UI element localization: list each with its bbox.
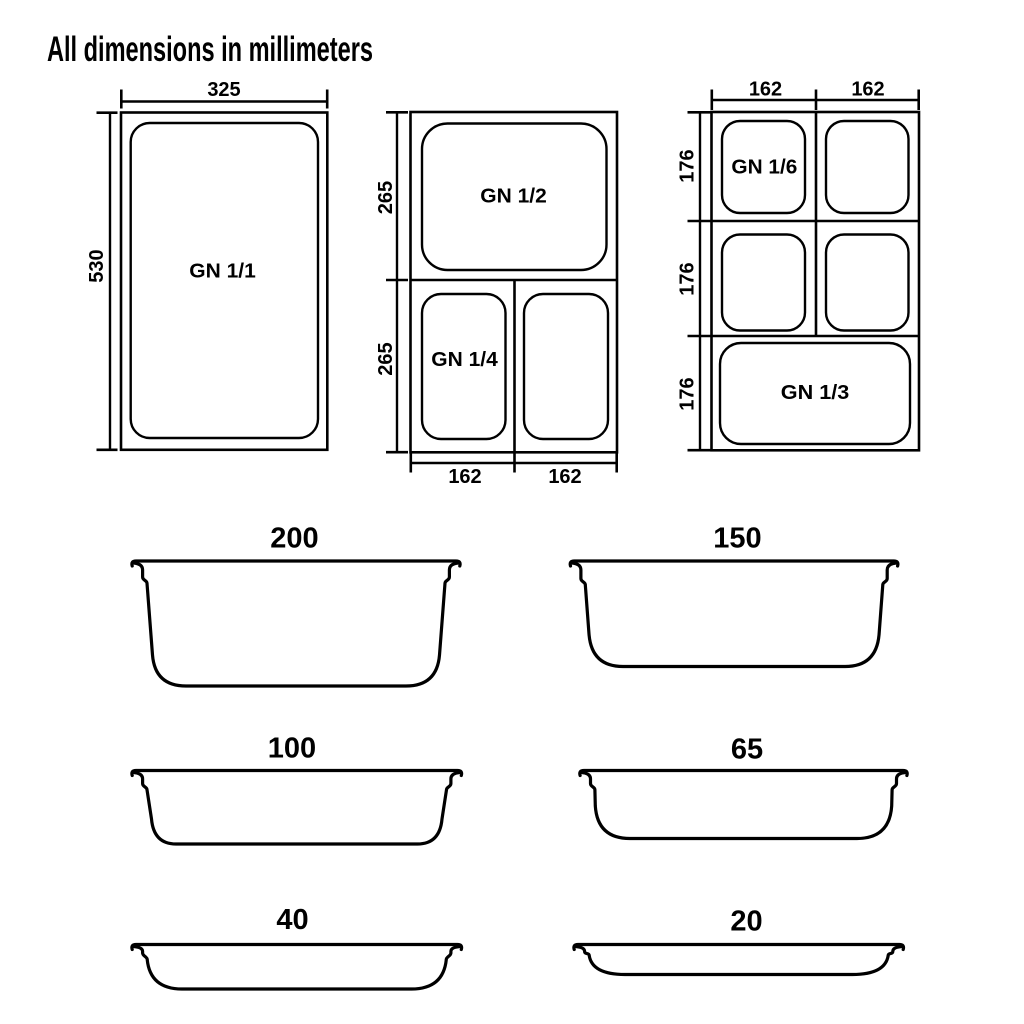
svg-text:GN 1/3: GN 1/3 bbox=[781, 382, 850, 404]
svg-text:40: 40 bbox=[276, 904, 308, 936]
svg-text:65: 65 bbox=[731, 734, 763, 766]
svg-text:All dimensions in millimeters: All dimensions in millimeters bbox=[47, 30, 373, 69]
svg-text:162: 162 bbox=[548, 466, 581, 488]
svg-text:GN 1/1: GN 1/1 bbox=[189, 260, 256, 282]
svg-text:176: 176 bbox=[677, 377, 699, 410]
svg-text:GN 1/2: GN 1/2 bbox=[480, 186, 547, 208]
svg-text:176: 176 bbox=[677, 149, 699, 182]
svg-text:GN 1/4: GN 1/4 bbox=[431, 349, 498, 371]
svg-text:162: 162 bbox=[749, 79, 782, 101]
svg-text:150: 150 bbox=[713, 523, 761, 555]
svg-text:162: 162 bbox=[448, 466, 481, 488]
svg-text:265: 265 bbox=[375, 342, 397, 375]
svg-text:265: 265 bbox=[375, 181, 397, 214]
svg-text:325: 325 bbox=[207, 79, 240, 101]
svg-text:162: 162 bbox=[851, 79, 884, 101]
svg-text:530: 530 bbox=[86, 249, 108, 282]
svg-text:100: 100 bbox=[268, 733, 316, 765]
svg-text:GN 1/6: GN 1/6 bbox=[731, 156, 797, 178]
svg-text:200: 200 bbox=[270, 523, 318, 555]
svg-text:20: 20 bbox=[730, 906, 762, 938]
svg-text:176: 176 bbox=[677, 262, 699, 295]
